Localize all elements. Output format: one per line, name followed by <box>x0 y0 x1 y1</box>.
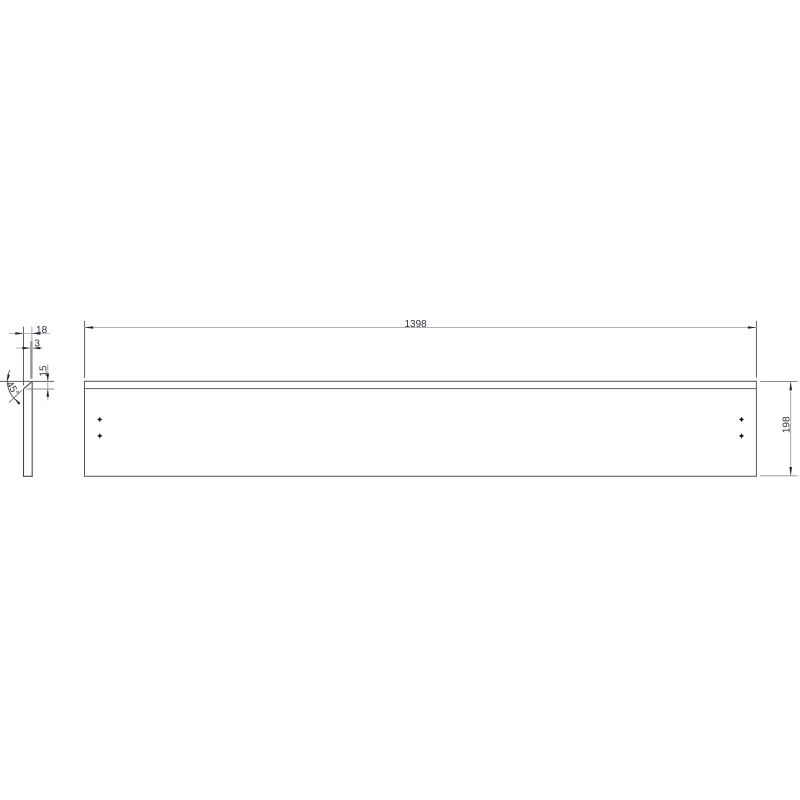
svg-text:1398: 1398 <box>404 319 427 330</box>
svg-text:198: 198 <box>782 416 793 433</box>
svg-text:18: 18 <box>36 325 48 336</box>
svg-text:15: 15 <box>38 365 49 377</box>
svg-text:3: 3 <box>34 339 40 350</box>
